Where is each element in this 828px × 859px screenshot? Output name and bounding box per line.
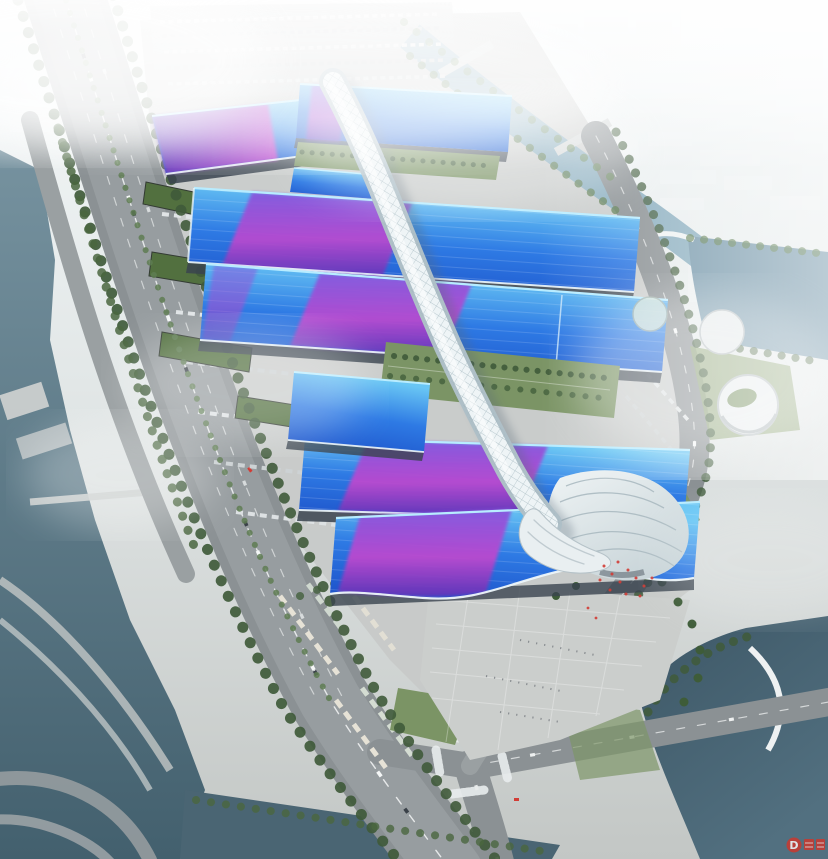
watermark-letter: D	[789, 839, 798, 852]
aerial-rendering: Aerial rendering of a riverside exhibiti…	[0, 0, 828, 859]
rendering-canvas: Aerial rendering of a riverside exhibiti…	[0, 0, 828, 859]
entrance-doors	[600, 572, 644, 575]
